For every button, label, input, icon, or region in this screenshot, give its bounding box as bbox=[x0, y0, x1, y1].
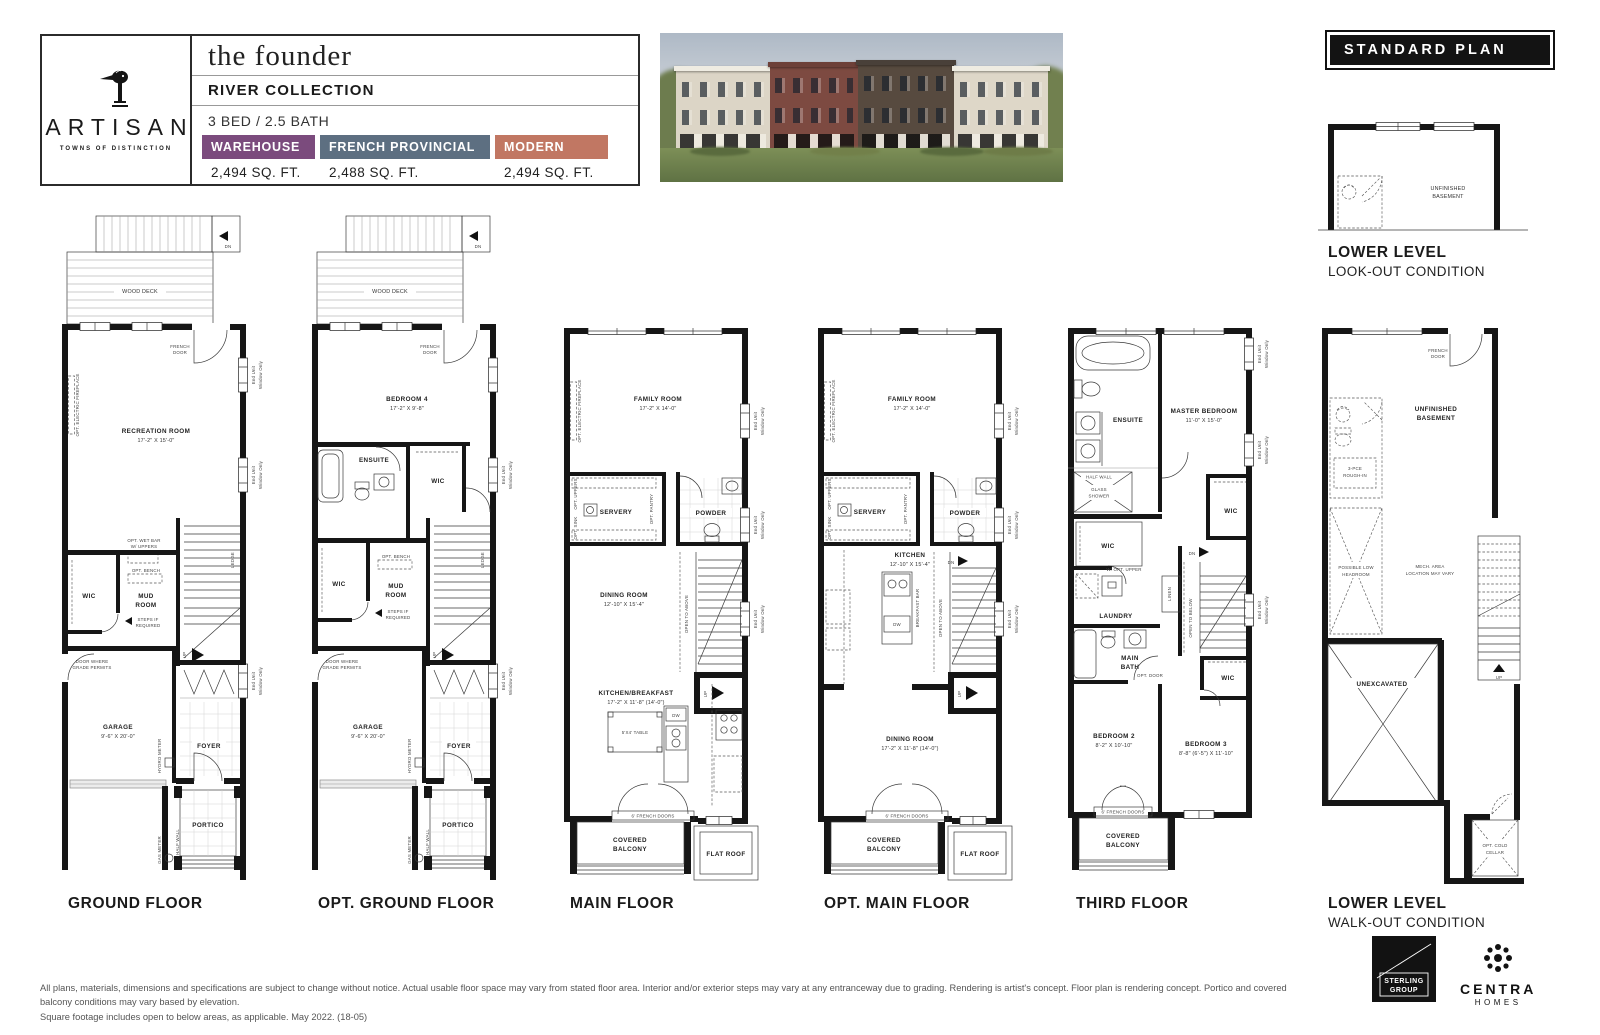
wetbar-label: OPT. WET BAR bbox=[127, 538, 160, 543]
end-unit-label: Window Only bbox=[1014, 604, 1019, 633]
stairs: UP bbox=[1478, 536, 1520, 680]
end-unit-label: End Unit bbox=[1257, 600, 1262, 619]
dn-label: DN bbox=[948, 560, 955, 565]
opt-bench-label: OPT. BENCH bbox=[132, 568, 160, 573]
stairs: LEDGE UP bbox=[176, 518, 240, 666]
french-door-label: FRENCH bbox=[1428, 348, 1448, 353]
standard-plan-banner: STANDARD PLAN bbox=[1325, 30, 1555, 70]
room-label: FLAT ROOF bbox=[960, 851, 999, 858]
rough-in-label: ROUGH-IN bbox=[1343, 473, 1367, 478]
up-label: UP bbox=[1496, 675, 1503, 680]
opt-fireplace-label: OPT. ELECTRIC FIREPLACE bbox=[75, 374, 80, 437]
ledge-label: LEDGE bbox=[480, 552, 485, 568]
open-to-above-label: OPEN TO ABOVE bbox=[684, 595, 689, 633]
collection-name: RIVER COLLECTION bbox=[192, 76, 638, 106]
linen-label: LINEN bbox=[1167, 587, 1172, 601]
room-dim: 17'-2" X 15'-0" bbox=[137, 438, 174, 444]
sterling-group-logo: STERLING GROUP bbox=[1372, 936, 1436, 1002]
room-label: BALCONY bbox=[867, 846, 901, 853]
steps-label: STEPS IF bbox=[387, 609, 408, 614]
portico: PORTICO bbox=[174, 786, 242, 870]
room-label: BEDROOM 4 bbox=[386, 396, 428, 403]
glass-shower: HALF WALL GLASS SHOWER bbox=[1068, 468, 1158, 512]
mech-area-label: LOCATION MAY VARY bbox=[1406, 571, 1455, 576]
headroom-label: HEADROOM bbox=[1342, 572, 1370, 577]
end-unit-label: Window Only bbox=[760, 604, 765, 633]
opt-fireplace-label: OPT. ELECTRIC FIREPLACE bbox=[577, 380, 582, 443]
stairs: LEDGE UP bbox=[426, 518, 490, 666]
french-door-label: DOOR bbox=[1431, 354, 1445, 359]
stairs: OPEN TO ABOVE UP bbox=[680, 552, 748, 714]
room-label: LAUNDRY bbox=[1099, 613, 1133, 620]
powder-room: POWDER bbox=[676, 472, 748, 546]
cold-cellar-label: CELLAR bbox=[1486, 850, 1504, 855]
room-label: FOYER bbox=[197, 743, 221, 750]
servery: SERVERY OPT. PANTRY OPT. UPPERS OPT. SIN… bbox=[818, 472, 920, 546]
kitchen-island: DW BREAKFAST BAR bbox=[826, 550, 920, 684]
glass-shower-label: GLASS bbox=[1091, 487, 1107, 492]
room-label: MUD bbox=[138, 593, 154, 600]
wetbar-label: W/ UPPERS bbox=[131, 544, 157, 549]
room-label: PORTICO bbox=[442, 822, 474, 829]
laundry: W/ OPT. UPPER LAUNDRY bbox=[1076, 567, 1142, 620]
end-unit-label: Window Only bbox=[258, 360, 263, 389]
plan-lower-walkout: FRENCH DOOR UNFINISHED BASEMENT 3-PCE RO… bbox=[1322, 328, 1532, 890]
room-label: WIC bbox=[1101, 543, 1114, 550]
opt-pantry-label: OPT. PANTRY bbox=[903, 494, 908, 525]
end-unit-label: End Unit bbox=[1007, 411, 1012, 430]
elevation-modern: MODERN 2,494 SQ. FT. bbox=[495, 135, 608, 180]
room-label: FAMILY ROOM bbox=[888, 396, 936, 403]
opt-uppers-label: OPT. UPPERS bbox=[827, 478, 832, 509]
dw-label: DW bbox=[893, 622, 901, 627]
room-label: UNEXCAVATED bbox=[1357, 681, 1408, 688]
ensuite: ENSUITE bbox=[312, 442, 410, 542]
end-unit-label: End Unit bbox=[1007, 515, 1012, 534]
dn-label: DN bbox=[475, 244, 482, 249]
end-unit-label: End Unit bbox=[501, 671, 506, 690]
floorplan-sheet: ARTISAN TOWNS OF DISTINCTION the founder… bbox=[0, 0, 1600, 1035]
plan-main-floor: End Unit Window Only End Unit Window Onl… bbox=[564, 328, 774, 890]
up-label: UP bbox=[182, 652, 187, 659]
end-unit-label: End Unit bbox=[251, 671, 256, 690]
floor-label: LOWER LEVEL bbox=[1328, 244, 1485, 262]
gas-meter-label: GAS METER bbox=[157, 836, 162, 864]
room-label: MUD bbox=[388, 583, 404, 590]
covered-balcony: COVERED BALCONY bbox=[570, 822, 691, 874]
room-dim: 12'-10" X 15'-4" bbox=[604, 602, 644, 608]
open-to-below-label: OPEN TO BELOW bbox=[1188, 598, 1193, 638]
opt-door-label: OPT. DOOR bbox=[1137, 673, 1163, 678]
room-label: WIC bbox=[1224, 508, 1237, 515]
wic-right: WIC bbox=[410, 442, 490, 512]
room-label: UNFINISHED bbox=[1431, 186, 1466, 192]
room-label: BASEMENT bbox=[1432, 194, 1464, 200]
room-label: WIC bbox=[1221, 675, 1234, 682]
opt-pantry-label: OPT. PANTRY bbox=[649, 494, 654, 525]
dn-label: DN bbox=[1189, 551, 1196, 556]
end-unit-label: End Unit bbox=[1257, 440, 1262, 459]
brand-tagline: TOWNS OF DISTINCTION bbox=[60, 146, 172, 152]
half-wall-label: HALF WALL bbox=[1086, 475, 1112, 480]
elevation-sqft: 2,488 SQ. FT. bbox=[320, 159, 490, 180]
disclaimer-line-1: All plans, materials, dimensions and spe… bbox=[40, 981, 1295, 1010]
linen-closet: LINEN bbox=[1162, 576, 1180, 612]
wood-deck: DN WOOD DECK bbox=[67, 216, 240, 324]
rough-in-bath bbox=[1338, 176, 1382, 228]
end-unit-label: Window Only bbox=[760, 510, 765, 539]
elevation-french-provincial: FRENCH PROVINCIAL 2,488 SQ. FT. bbox=[320, 135, 490, 180]
opt-sink-label: OPT. SINK bbox=[573, 516, 578, 539]
opt-fireplace bbox=[69, 376, 75, 434]
room-label: WIC bbox=[332, 581, 345, 588]
rendering-image bbox=[660, 33, 1063, 182]
room-dim: 8'-8" (6'-5") X 11'-10" bbox=[1179, 751, 1233, 757]
room-label: ROOM bbox=[385, 592, 406, 599]
french-doors-label: 6' FRENCH DOORS bbox=[885, 814, 928, 819]
room-dim: 17'-2" X 14'-0" bbox=[893, 406, 930, 412]
flat-roof: FLAT ROOF bbox=[948, 817, 1012, 881]
dn-label: DN bbox=[225, 244, 232, 249]
room-dim: 17'-2" X 9'-8" bbox=[390, 406, 424, 412]
elevation-sqft: 2,494 SQ. FT. bbox=[202, 159, 315, 180]
gas-meter-label: GAS METER bbox=[407, 836, 412, 864]
caption-opt-ground-floor: OPT. GROUND FLOOR bbox=[318, 895, 494, 913]
end-unit-label: Window Only bbox=[508, 666, 513, 695]
caption-main-floor: MAIN FLOOR bbox=[570, 895, 674, 913]
possible-low-headroom: POSSIBLE LOW HEADROOM bbox=[1330, 508, 1382, 634]
room-label: UNFINISHED bbox=[1415, 406, 1458, 413]
floor-sublabel: LOOK-OUT CONDITION bbox=[1328, 264, 1485, 279]
room-label: WIC bbox=[431, 478, 444, 485]
disclaimer-line-2: Square footage includes open to below ar… bbox=[40, 1010, 1295, 1024]
end-unit-label: End Unit bbox=[753, 515, 758, 534]
elevation-warehouse: WAREHOUSE 2,494 SQ. FT. bbox=[202, 135, 315, 180]
sterling-label: STERLING bbox=[1384, 978, 1423, 985]
end-unit-label: Window Only bbox=[1264, 339, 1269, 368]
rough-in-label: 3-PCE bbox=[1348, 466, 1362, 471]
grade-door-label: DOOR WHERE bbox=[326, 659, 359, 664]
plan-opt-ground-floor: DN WOOD DECK FRENCH DOOR End Unit Window… bbox=[312, 208, 522, 893]
brand-name: ARTISAN bbox=[45, 114, 193, 141]
room-label: POWDER bbox=[696, 510, 727, 517]
disclaimer: All plans, materials, dimensions and spe… bbox=[40, 981, 1295, 1024]
stairs: DN OPEN TO BELOW bbox=[1178, 546, 1246, 656]
wood-deck: DN WOOD DECK bbox=[317, 216, 490, 324]
glass-shower-label: SHOWER bbox=[1089, 494, 1110, 499]
room-label: WOOD DECK bbox=[372, 289, 408, 295]
steps-label: REQUIRED bbox=[136, 623, 161, 628]
floor-label: LOWER LEVEL bbox=[1328, 895, 1485, 913]
room-label: KITCHEN/BREAKFAST bbox=[598, 690, 673, 697]
french-doors-label: 6' FRENCH DOORS bbox=[631, 814, 674, 819]
up-label: UP bbox=[432, 652, 437, 659]
end-unit-label: End Unit bbox=[501, 465, 506, 484]
caption-opt-main-floor: OPT. MAIN FLOOR bbox=[824, 895, 970, 913]
centra-starburst-icon bbox=[1478, 942, 1518, 976]
room-label: DINING ROOM bbox=[886, 736, 934, 743]
lookout-caption: LOWER LEVEL LOOK-OUT CONDITION bbox=[1328, 244, 1485, 279]
end-unit-label: Window Only bbox=[258, 460, 263, 489]
portico: PORTICO bbox=[424, 786, 492, 870]
ensuite: ENSUITE bbox=[1074, 328, 1162, 512]
headroom-label: POSSIBLE LOW bbox=[1338, 565, 1374, 570]
end-unit-label: Window Only bbox=[1014, 406, 1019, 435]
end-unit-label: Window Only bbox=[258, 666, 263, 695]
opt-bench-label: OPT. BENCH bbox=[382, 554, 410, 559]
grade-door-label: GRADE PERMITS bbox=[73, 665, 112, 670]
rough-in-bath: 3-PCE ROUGH-IN bbox=[1330, 398, 1382, 498]
centra-label: CENTRA bbox=[1460, 981, 1536, 997]
french-door-label: DOOR bbox=[423, 350, 437, 355]
covered-balcony: COVERED BALCONY bbox=[1072, 818, 1175, 870]
artisan-bird-icon bbox=[94, 68, 138, 110]
room-label: SERVERY bbox=[854, 509, 887, 516]
table-label: 5'X4' TABLE bbox=[622, 730, 648, 735]
room-label: GARAGE bbox=[353, 724, 383, 731]
bed-bath-config: 3 BED / 2.5 BATH bbox=[192, 106, 638, 135]
room-label: COVERED bbox=[1106, 833, 1140, 840]
french-door-label: FRENCH bbox=[420, 344, 440, 349]
up-label: UP bbox=[957, 691, 962, 698]
dw-label: DW bbox=[672, 713, 680, 718]
floor-sublabel: WALK-OUT CONDITION bbox=[1328, 915, 1485, 930]
plan-name: the founder bbox=[192, 36, 638, 76]
plan-ground-floor: DN WOOD DECK FRENCH DOOR End Unit Window… bbox=[62, 208, 272, 893]
end-unit-label: Window Only bbox=[1014, 510, 1019, 539]
hydro-meter-label: HYDRO METER bbox=[157, 739, 162, 774]
plan-third-floor: End Unit Window Only End Unit Window Onl… bbox=[1068, 328, 1278, 890]
room-label: BATH bbox=[1121, 664, 1140, 671]
room-label: WOOD DECK bbox=[122, 289, 158, 295]
french-doors-label: 6' FRENCH DOORS bbox=[1101, 810, 1144, 815]
cold-cellar-label: OPT. COLD bbox=[1483, 843, 1508, 848]
cold-cellar: OPT. COLD CELLAR bbox=[1464, 794, 1518, 884]
breakfast-bar-label: BREAKFAST BAR bbox=[915, 589, 920, 628]
room-label: BASEMENT bbox=[1417, 415, 1456, 422]
end-unit-label: End Unit bbox=[753, 609, 758, 628]
sterling-label: GROUP bbox=[1390, 987, 1418, 994]
room-label: ENSUITE bbox=[1113, 417, 1143, 424]
room-label: COVERED bbox=[613, 837, 647, 844]
mech-area-label: MECH. AREA bbox=[1415, 564, 1444, 569]
end-unit-label: End Unit bbox=[1257, 344, 1262, 363]
steps-label: REQUIRED bbox=[386, 615, 411, 620]
elevation-label: WAREHOUSE bbox=[202, 135, 315, 159]
room-label: ENSUITE bbox=[359, 457, 389, 464]
elevation-label: MODERN bbox=[495, 135, 608, 159]
elevation-label: FRENCH PROVINCIAL bbox=[320, 135, 490, 159]
room-dim: 17'-2" X 11'-8" (14'-0") bbox=[607, 700, 664, 706]
centra-homes-logo: CENTRA HOMES bbox=[1460, 942, 1536, 1007]
elevation-table: WAREHOUSE 2,494 SQ. FT. FRENCH PROVINCIA… bbox=[192, 135, 638, 180]
room-dim: 8'-2" X 10'-10" bbox=[1095, 743, 1132, 749]
room-label: POWDER bbox=[950, 510, 981, 517]
room-label: BEDROOM 3 bbox=[1185, 741, 1227, 748]
steps-label: STEPS IF bbox=[137, 617, 158, 622]
caption-third-floor: THIRD FLOOR bbox=[1076, 895, 1189, 913]
room-label: FLAT ROOF bbox=[706, 851, 745, 858]
elevation-sqft: 2,494 SQ. FT. bbox=[495, 159, 608, 180]
hydro-meter-label: HYDRO METER bbox=[407, 739, 412, 774]
room-label: MAIN bbox=[1121, 655, 1139, 662]
plan-lower-lookout: UNFINISHED BASEMENT bbox=[1318, 118, 1528, 248]
half-wall-label: HALF WALL bbox=[175, 829, 180, 855]
end-unit-label: End Unit bbox=[1007, 609, 1012, 628]
room-label: RECREATION ROOM bbox=[122, 428, 191, 435]
end-unit-label: Window Only bbox=[1264, 595, 1269, 624]
room-dim: 9'-6" X 20'-0" bbox=[101, 734, 135, 740]
centra-sublabel: HOMES bbox=[1460, 998, 1536, 1007]
wic-bed3: WIC bbox=[1200, 656, 1252, 706]
room-label: DINING ROOM bbox=[600, 592, 648, 599]
up-label: UP bbox=[703, 691, 708, 698]
powder-room: POWDER bbox=[930, 472, 1002, 546]
grade-door-label: GRADE PERMITS bbox=[323, 665, 362, 670]
covered-balcony: COVERED BALCONY bbox=[824, 822, 945, 874]
wic-master-right: WIC bbox=[1206, 474, 1252, 540]
room-label: FOYER bbox=[447, 743, 471, 750]
room-label: BALCONY bbox=[613, 846, 647, 853]
unexcavated: UNEXCAVATED bbox=[1328, 644, 1438, 804]
caption-ground-floor: GROUND FLOOR bbox=[68, 895, 203, 913]
end-unit-label: End Unit bbox=[753, 411, 758, 430]
room-label: WIC bbox=[82, 593, 95, 600]
standard-plan-label: STANDARD PLAN bbox=[1330, 35, 1550, 65]
end-unit-label: End Unit bbox=[251, 465, 256, 484]
opt-fireplace-label: OPT. ELECTRIC FIREPLACE bbox=[831, 380, 836, 443]
main-bath: MAIN BATH OPT. DOOR bbox=[1068, 630, 1163, 684]
room-label: GARAGE bbox=[103, 724, 133, 731]
grade-door-label: DOOR WHERE bbox=[76, 659, 109, 664]
room-label: MASTER BEDROOM bbox=[1171, 408, 1238, 415]
opt-uppers-label: OPT. UPPERS bbox=[573, 478, 578, 509]
end-unit-label: Window Only bbox=[760, 406, 765, 435]
open-to-above-label: OPEN TO ABOVE bbox=[938, 599, 943, 637]
french-door-label: FRENCH bbox=[170, 344, 190, 349]
opt-upper-label: W/ OPT. UPPER bbox=[1106, 567, 1141, 572]
half-wall-label: HALF WALL bbox=[425, 829, 430, 855]
opt-sink-label: OPT. SINK bbox=[827, 516, 832, 539]
room-label: COVERED bbox=[867, 837, 901, 844]
room-dim: 11'-0" X 15'-0" bbox=[1186, 418, 1223, 424]
end-unit-label: Window Only bbox=[508, 460, 513, 489]
room-label: SERVERY bbox=[600, 509, 633, 516]
room-dim: 9'-6" X 20'-0" bbox=[351, 734, 385, 740]
end-unit-label: Window Only bbox=[1264, 435, 1269, 464]
room-dim: 17'-2" X 14'-0" bbox=[639, 406, 676, 412]
room-dim: 12'-10" X 15'-4" bbox=[890, 562, 930, 568]
artisan-logo: ARTISAN TOWNS OF DISTINCTION bbox=[42, 36, 192, 184]
plan-opt-main-floor: End Unit Window Only End Unit Window Onl… bbox=[818, 328, 1028, 890]
room-label: FAMILY ROOM bbox=[634, 396, 682, 403]
room-label: BEDROOM 2 bbox=[1093, 733, 1135, 740]
wic-master-left: WIC bbox=[1068, 522, 1142, 584]
title-block: ARTISAN TOWNS OF DISTINCTION the founder… bbox=[40, 34, 640, 186]
room-label: KITCHEN bbox=[895, 552, 926, 559]
ledge-label: LEDGE bbox=[230, 552, 235, 568]
end-unit-label: End Unit bbox=[251, 365, 256, 384]
room-dim: 17'-2" X 11'-8" (14'-0") bbox=[881, 746, 938, 752]
room-label: PORTICO bbox=[192, 822, 224, 829]
flat-roof: FLAT ROOF bbox=[694, 817, 758, 881]
french-door-arc bbox=[194, 330, 227, 363]
room-label: BALCONY bbox=[1106, 842, 1140, 849]
room-label: ROOM bbox=[135, 602, 156, 609]
caption-lower-walkout: LOWER LEVEL WALK-OUT CONDITION bbox=[1328, 895, 1485, 930]
servery: SERVERY OPT. PANTRY OPT. UPPERS OPT. SIN… bbox=[564, 472, 666, 546]
french-door-label: DOOR bbox=[173, 350, 187, 355]
